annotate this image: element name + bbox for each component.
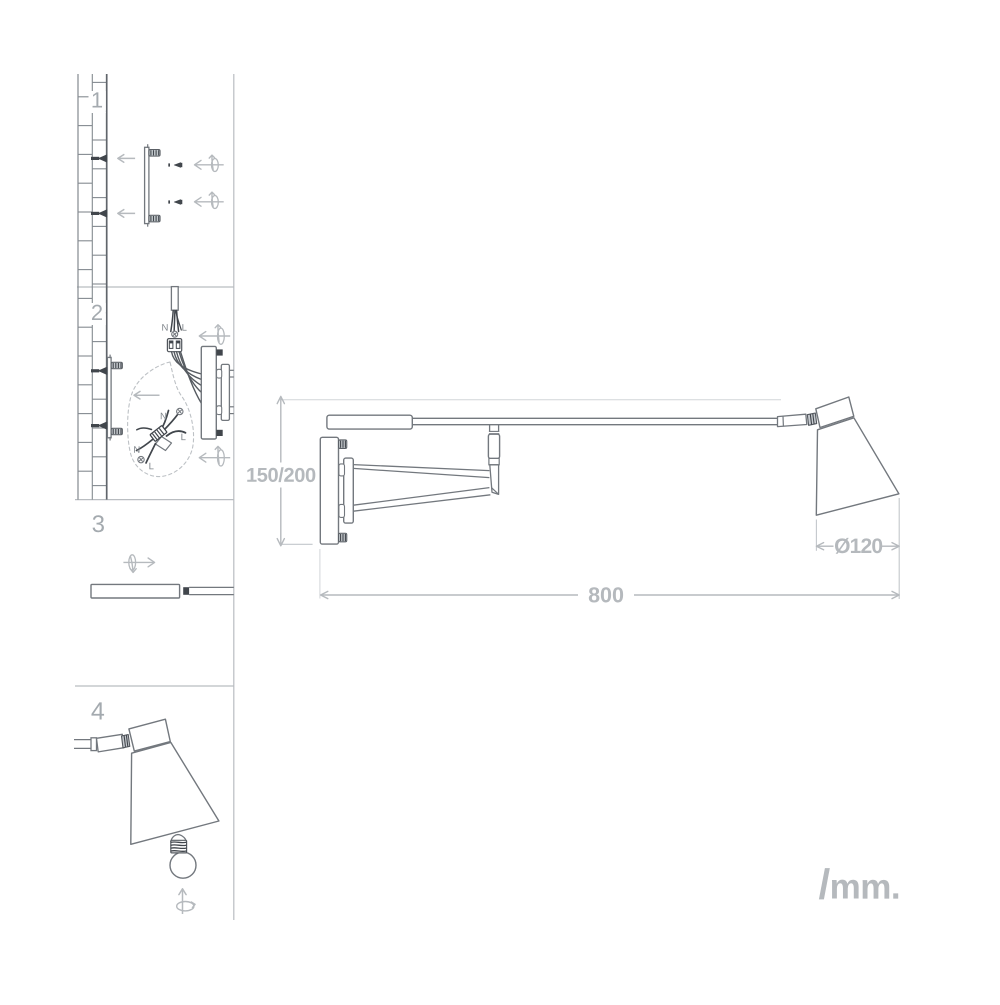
svg-text:N: N: [160, 411, 167, 422]
svg-text:/mm.: /mm.: [818, 861, 900, 908]
svg-text:N: N: [161, 323, 168, 334]
svg-text:L: L: [149, 461, 154, 472]
svg-text:3: 3: [92, 511, 105, 538]
svg-text:Ø120: Ø120: [834, 535, 882, 558]
svg-text:L: L: [182, 323, 187, 334]
svg-text:4: 4: [91, 697, 105, 725]
svg-text:150/200: 150/200: [246, 465, 316, 487]
svg-text:N: N: [133, 445, 140, 456]
svg-text:2: 2: [91, 300, 103, 325]
svg-text:L: L: [181, 432, 186, 443]
svg-text:800: 800: [588, 583, 624, 607]
svg-text:1: 1: [91, 87, 103, 112]
